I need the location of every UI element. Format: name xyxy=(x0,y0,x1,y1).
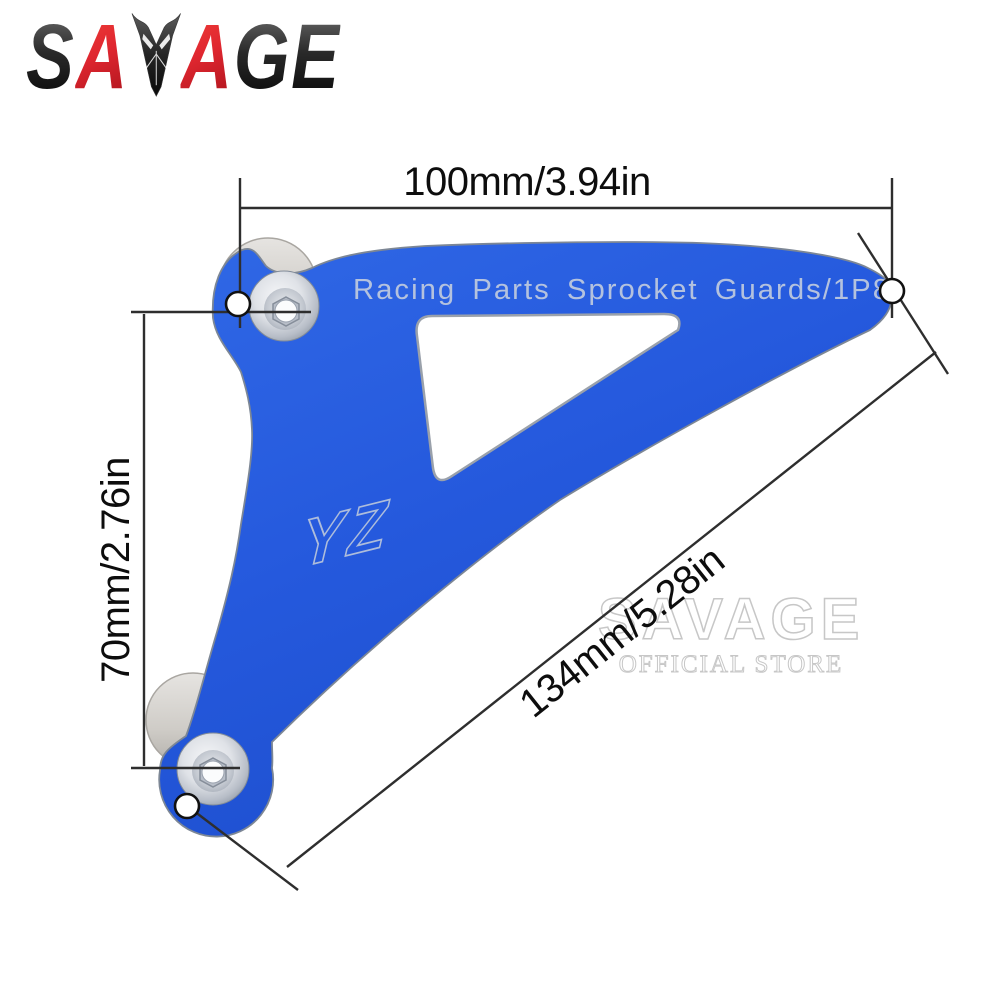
part-name-engraving: Racing Parts Sprocket Guards/1P8 xyxy=(353,274,891,306)
dimension-label-width: 100mm/3.94in xyxy=(357,156,697,208)
product-image-canvas: SAVAGE OFFICIAL STORE xyxy=(0,0,1000,1000)
marker-bottom-left xyxy=(175,794,199,818)
dimension-label-height: 70mm/2.76in xyxy=(90,400,142,740)
bottom-bolt-center-hole xyxy=(202,761,224,783)
marker-right-tip xyxy=(880,279,904,303)
sprocket-guard-diagram: Racing Parts Sprocket Guards/1P8 YZ xyxy=(0,0,1000,1000)
marker-top-left xyxy=(226,292,250,316)
top-mount-bolt xyxy=(249,271,319,341)
